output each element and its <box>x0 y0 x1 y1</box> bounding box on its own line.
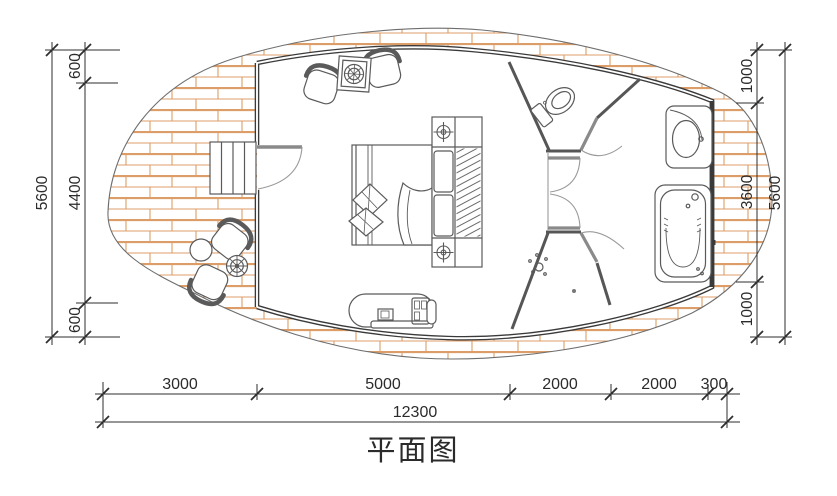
dim-left-600-top: 600 <box>67 53 84 79</box>
dim-bottom-3000: 3000 <box>162 376 198 393</box>
vanity-sink <box>666 106 712 168</box>
blanket <box>398 183 432 245</box>
floor-plan-drawing: 600 4400 600 5600 1000 3600 1000 5600 30… <box>0 0 837 496</box>
dim-bottom-5000: 5000 <box>365 376 401 393</box>
tv-console <box>349 294 436 328</box>
dim-left-total-5600: 5600 <box>34 175 51 210</box>
bed <box>349 145 432 245</box>
fire-pit-table <box>227 256 248 277</box>
dim-right-1000-bottom: 1000 <box>739 291 756 326</box>
dim-left-4400: 4400 <box>67 175 84 210</box>
wardrobe-hanging-clothes <box>457 149 481 237</box>
drawing-title: 平面图 <box>366 435 459 467</box>
dim-bottom-2000-b: 2000 <box>641 376 677 393</box>
bathtub <box>655 185 711 282</box>
dim-right-total-5600: 5600 <box>767 175 784 210</box>
outdoor-table <box>190 239 212 261</box>
floor-drain <box>572 289 576 293</box>
dim-right-3600: 3600 <box>739 174 756 209</box>
dim-bottom-total-12300: 12300 <box>393 404 438 421</box>
wardrobe-nightstand-column <box>432 117 482 267</box>
dim-bottom-300: 300 <box>701 376 728 393</box>
floor-plan-page: 600 4400 600 5600 1000 3600 1000 5600 30… <box>0 0 837 496</box>
entry-steps <box>210 142 256 194</box>
dim-left-600-bottom: 600 <box>67 307 84 333</box>
side-table <box>337 56 371 92</box>
dim-right-1000-top: 1000 <box>739 58 756 93</box>
dim-bottom-2000-a: 2000 <box>542 376 578 393</box>
